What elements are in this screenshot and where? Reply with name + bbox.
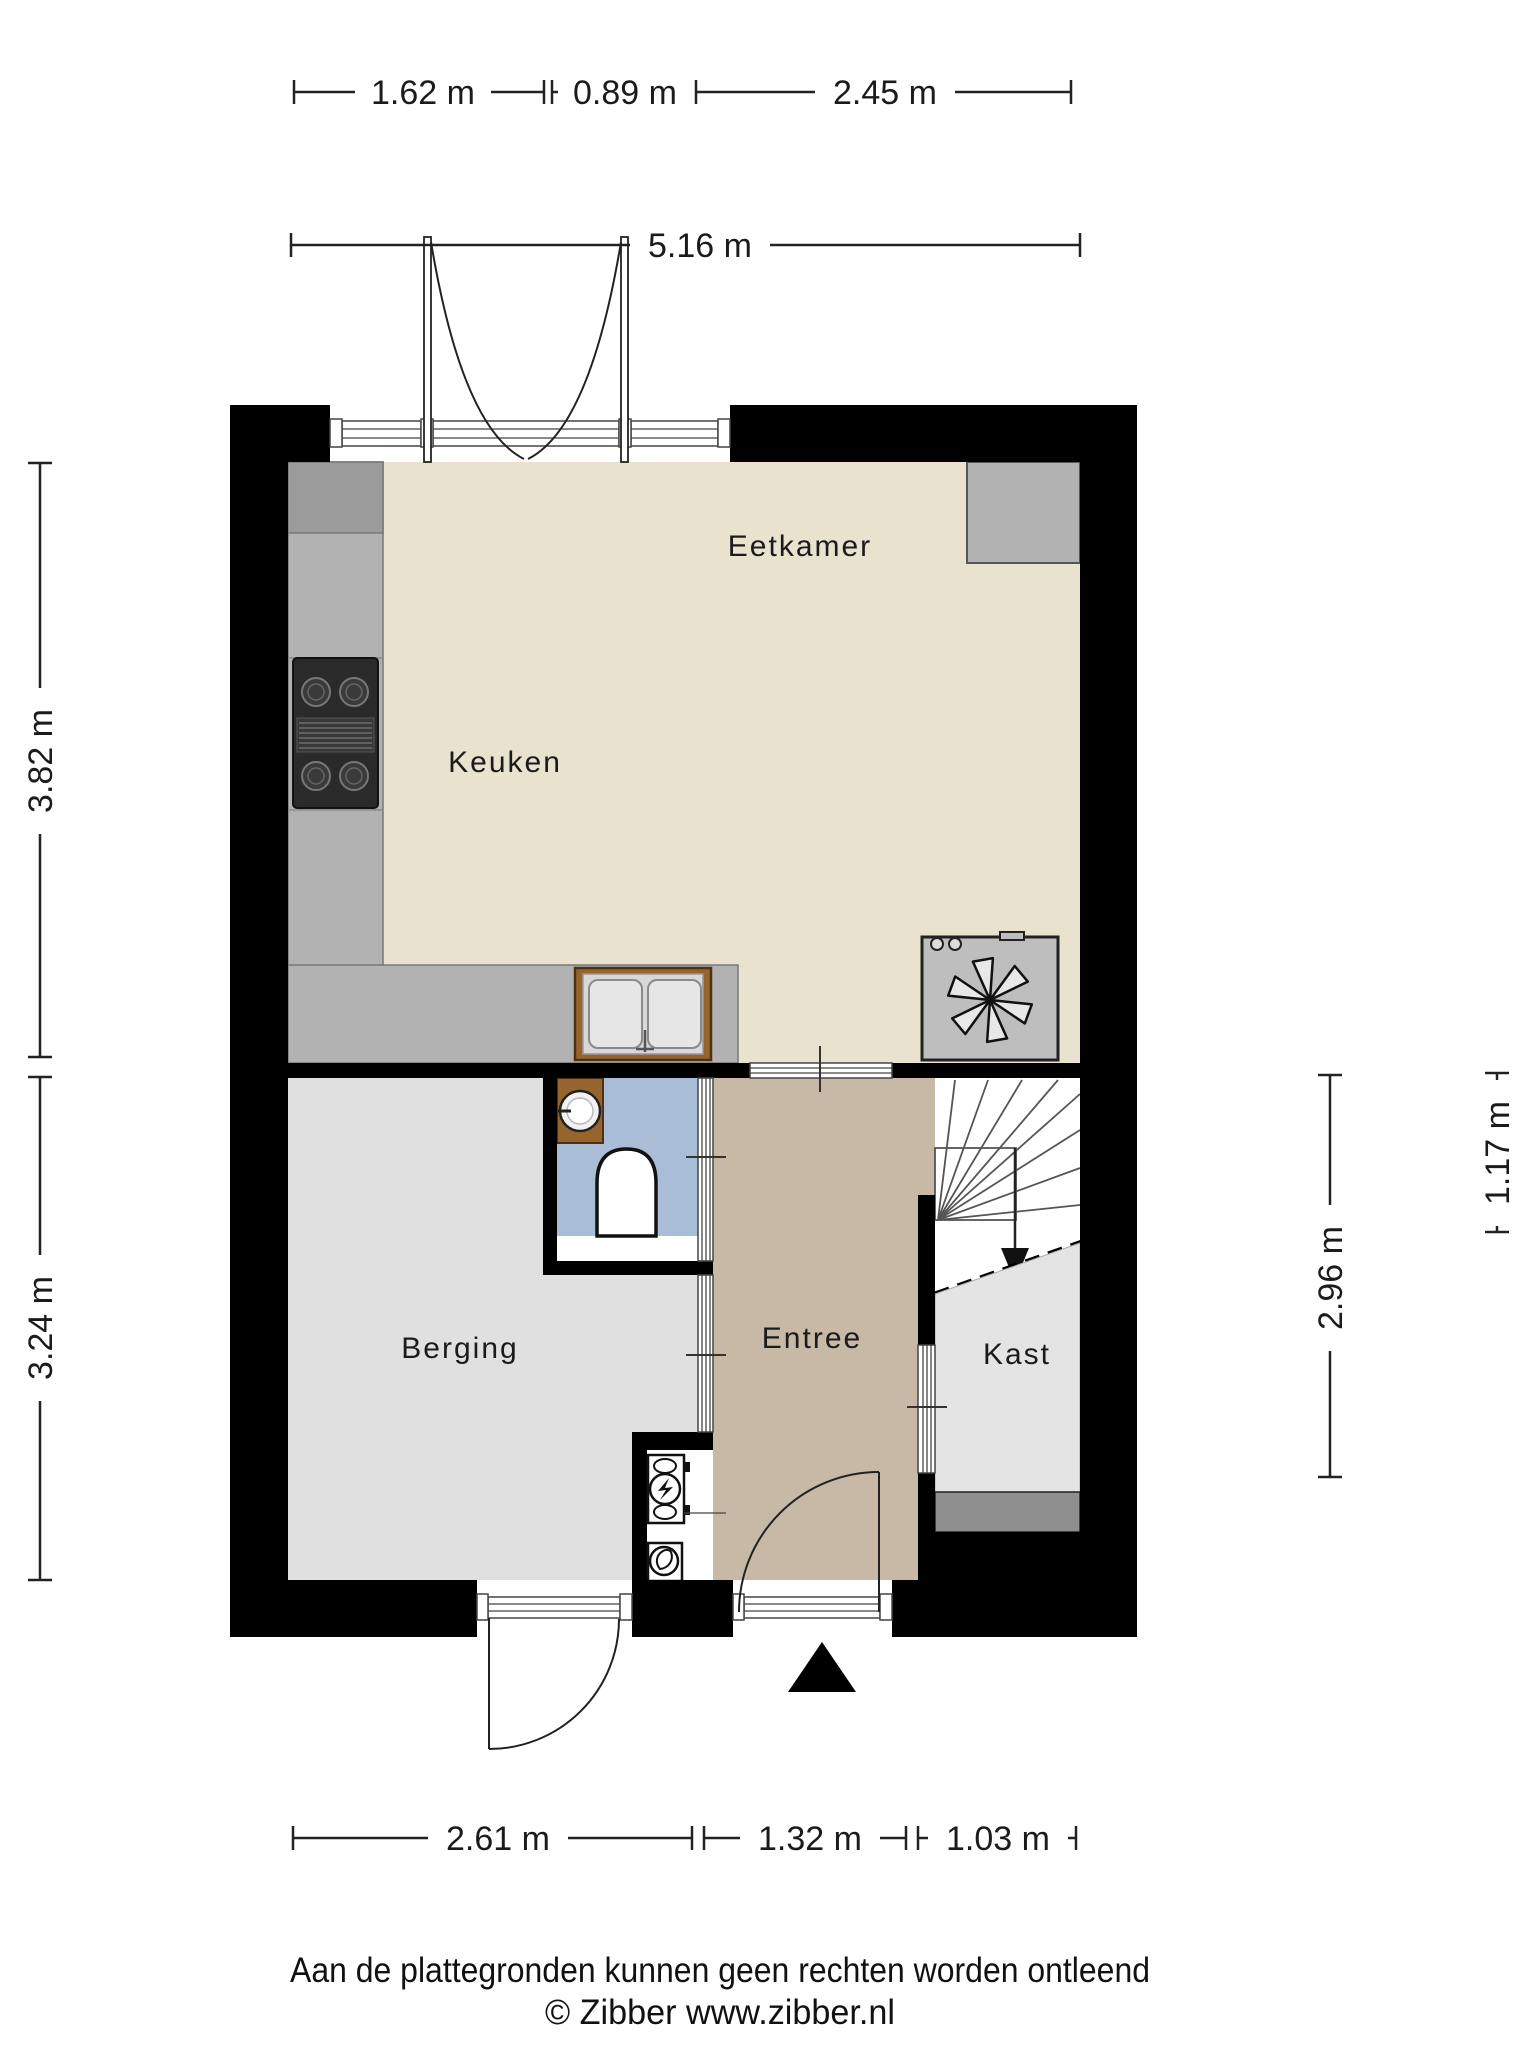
kast-area — [935, 1243, 1080, 1532]
dim-label: 1.17 m — [1479, 1101, 1517, 1205]
toilet-room — [557, 1078, 698, 1261]
gas-meter-icon — [648, 1543, 682, 1581]
toilet-icon — [597, 1149, 656, 1236]
dim-top-3: 2.45 m — [696, 70, 1071, 114]
mechanical-unit — [922, 932, 1058, 1060]
meter-cupboard — [632, 1432, 726, 1583]
dim-label: 3.82 m — [22, 709, 60, 813]
cooktop-icon — [293, 658, 378, 808]
footer-copyright: © Zibber www.zibber.nl — [545, 1993, 895, 2032]
electric-meter-icon — [648, 1455, 690, 1523]
floor-entree-stair-opening — [918, 1078, 935, 1195]
dim-right-2: 1.17 m — [1475, 1073, 1519, 1232]
top-window — [330, 419, 730, 447]
dim-left-2: 3.24 m — [18, 1077, 62, 1580]
wall-entree-kast-lower — [918, 1473, 935, 1637]
dim-left-1: 3.82 m — [18, 463, 62, 1057]
wall-interior-main — [288, 1063, 750, 1078]
wall — [632, 1432, 647, 1583]
corner-cabinet — [967, 462, 1080, 563]
kitchen-sink-icon — [575, 968, 711, 1060]
dim-bottom-1: 2.61 m — [293, 1816, 692, 1860]
dim-label: 0.89 m — [573, 74, 677, 112]
berging-exterior-door — [477, 1594, 632, 1749]
wall-left — [230, 405, 288, 1637]
floor-plan-page: Keuken Eetkamer Berging Entree Kast 1.62… — [0, 0, 1536, 2048]
dim-label: 3.24 m — [22, 1276, 60, 1380]
wall-top-left — [230, 405, 330, 462]
dim-label: 2.45 m — [833, 74, 937, 112]
wall-toilet-left — [543, 1063, 557, 1275]
wall-right — [1080, 405, 1137, 1637]
dim-bottom-2: 1.32 m — [704, 1816, 906, 1860]
room-label-berging: Berging — [401, 1332, 518, 1365]
room-label-eetkamer: Eetkamer — [728, 530, 872, 563]
dim-label: 2.96 m — [1312, 1226, 1350, 1330]
dim-top-2: 0.89 m — [552, 70, 692, 114]
wall-bottom-left — [230, 1580, 477, 1637]
dim-bottom-3: 1.03 m — [918, 1816, 1076, 1860]
footer-disclaimer: Aan de plattegronden kunnen geen rechten… — [290, 1951, 1150, 1990]
dim-top-total: 5.16 m — [291, 223, 1080, 267]
wall-toilet-bottom — [543, 1261, 713, 1275]
washbasin-icon — [557, 1078, 603, 1143]
kast-shelf-strip — [935, 1492, 1080, 1532]
room-label-keuken: Keuken — [448, 746, 562, 779]
dim-label: 2.61 m — [446, 1820, 550, 1858]
wall-bottom-middle — [632, 1580, 733, 1637]
dim-label: 1.03 m — [946, 1820, 1050, 1858]
wall-entree-stairs — [918, 1195, 935, 1345]
entrance-arrow-icon — [788, 1642, 856, 1692]
room-label-entree: Entree — [762, 1322, 862, 1355]
dim-label: 1.32 m — [758, 1820, 862, 1858]
wall-top-right — [730, 405, 1137, 462]
dim-label: 5.16 m — [648, 227, 752, 265]
wall — [632, 1432, 713, 1450]
floor-plan: Keuken Eetkamer Berging Entree Kast 1.62… — [0, 0, 1536, 2048]
dim-top-1: 1.62 m — [294, 70, 544, 114]
footer: Aan de plattegronden kunnen geen rechten… — [290, 1951, 1150, 2032]
room-label-kast: Kast — [983, 1338, 1051, 1371]
wall-under-kast — [935, 1532, 1080, 1637]
dim-label: 1.62 m — [371, 74, 475, 112]
wall-interior-main-right — [892, 1063, 1080, 1078]
dim-right-1: 2.96 m — [1308, 1075, 1352, 1477]
